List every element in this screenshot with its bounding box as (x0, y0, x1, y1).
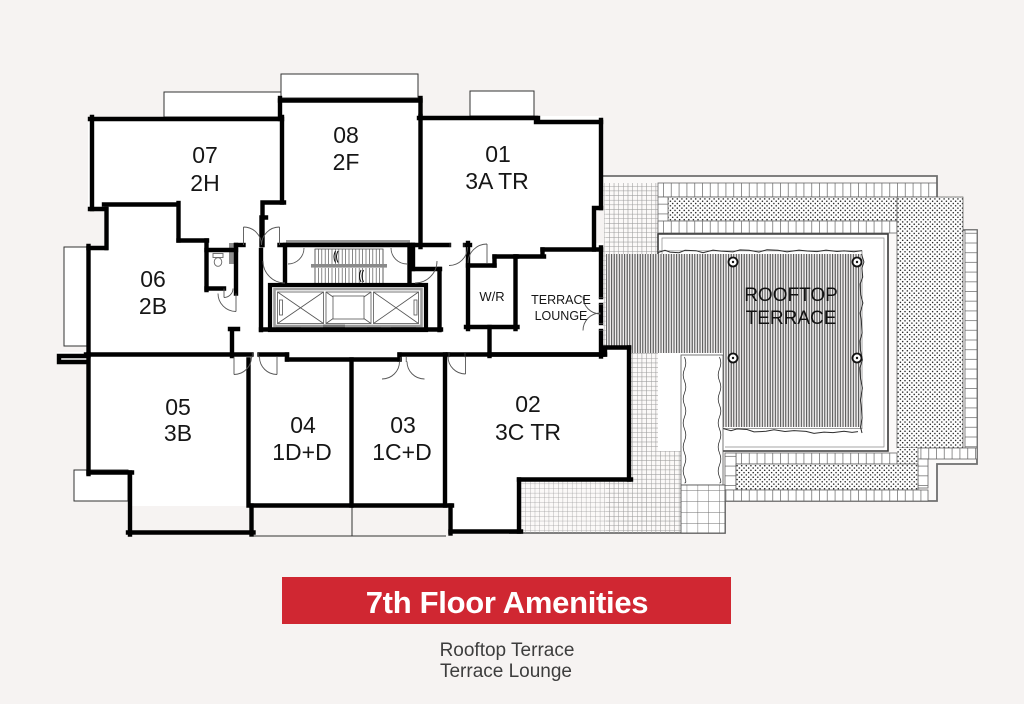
svg-text:TERRACE: TERRACE (746, 308, 837, 329)
svg-text:2H: 2H (190, 170, 219, 196)
svg-text:3B: 3B (164, 420, 192, 446)
svg-text:Terrace Lounge: Terrace Lounge (440, 661, 572, 682)
svg-text:3C TR: 3C TR (495, 419, 561, 445)
svg-text:06: 06 (140, 266, 166, 292)
svg-text:7th Floor Amenities: 7th Floor Amenities (366, 585, 649, 620)
svg-text:07: 07 (192, 142, 218, 168)
svg-text:03: 03 (390, 412, 416, 438)
svg-text:04: 04 (290, 412, 316, 438)
svg-text:05: 05 (165, 394, 191, 420)
svg-text:3A TR: 3A TR (465, 168, 529, 194)
svg-text:Rooftop Terrace: Rooftop Terrace (440, 640, 575, 661)
svg-text:2F: 2F (333, 149, 360, 175)
svg-text:01: 01 (485, 141, 511, 167)
svg-text:02: 02 (515, 391, 541, 417)
svg-text:2B: 2B (139, 293, 167, 319)
svg-text:TERRACE: TERRACE (531, 293, 591, 307)
svg-text:1C+D: 1C+D (372, 439, 431, 465)
svg-text:08: 08 (333, 122, 359, 148)
svg-text:1D+D: 1D+D (272, 439, 331, 465)
svg-text:ROOFTOP: ROOFTOP (744, 285, 838, 306)
svg-text:LOUNGE: LOUNGE (535, 309, 588, 323)
svg-text:W/R: W/R (479, 289, 504, 304)
